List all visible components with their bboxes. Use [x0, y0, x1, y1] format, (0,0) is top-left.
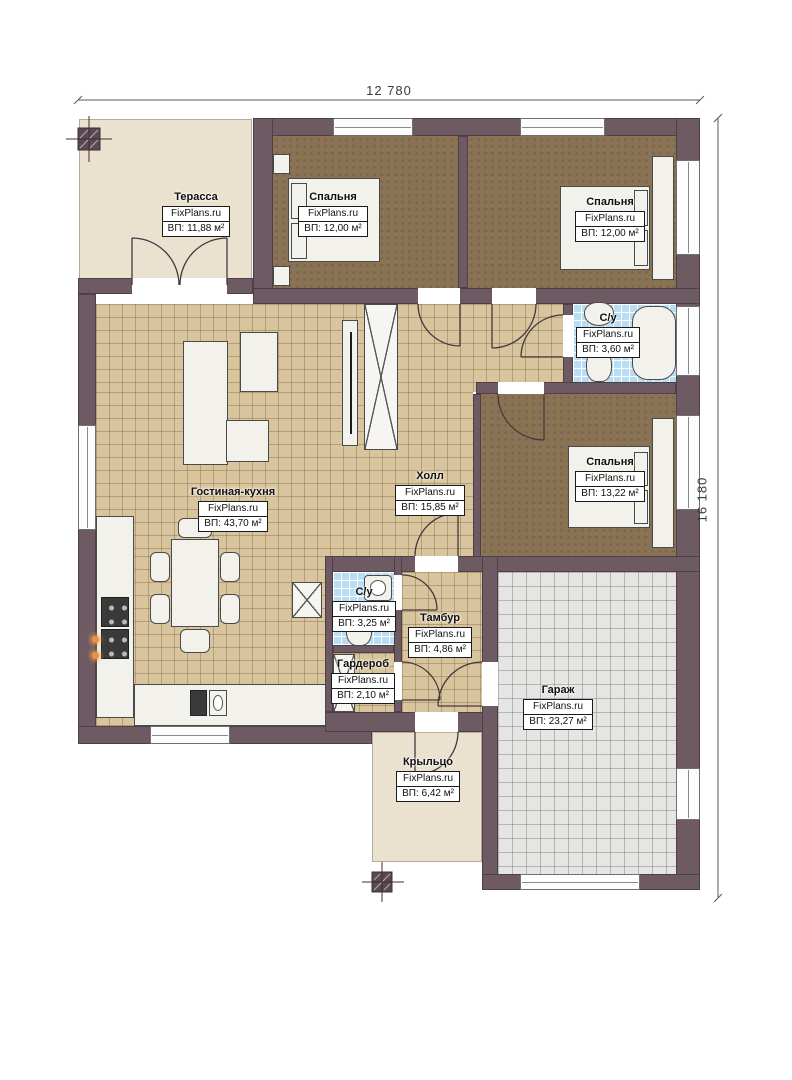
wall: [253, 118, 273, 302]
bedroom3-door-gap: [498, 382, 544, 394]
room-area: ВП: 13,22 м²: [576, 486, 643, 501]
floor-plan: 12 780 16 180 Терасса FixPlans.ruВП: 11,…: [0, 0, 792, 1080]
room-area: ВП: 12,00 м²: [576, 226, 643, 241]
dining-table: [171, 539, 219, 627]
garage-door: [520, 874, 640, 890]
room-area: ВП: 23,27 м²: [524, 714, 591, 729]
room-name: Спальня: [564, 456, 656, 469]
dimension-height-label: 16 180: [695, 450, 710, 550]
wall: [458, 136, 468, 288]
fridge-cabinet: [292, 582, 322, 618]
oven: [190, 690, 207, 716]
right-dimension-ticks: [714, 114, 722, 902]
window: [150, 726, 230, 744]
garage-side-door-gap: [482, 662, 498, 706]
brand-watermark: FixPlans.ru: [163, 207, 230, 221]
room-area: ВП: 2,10 м²: [332, 688, 394, 703]
kitchen-sink: [209, 690, 227, 716]
room-name: Холл: [388, 470, 472, 483]
hall-closet: [364, 304, 398, 450]
dimension-width-label: 12 780: [339, 83, 439, 98]
room-name: Спальня: [564, 196, 656, 209]
room-area: ВП: 6,42 м²: [397, 786, 459, 801]
hall-floor: [96, 304, 563, 392]
room-label-bedroom3: Спальня FixPlans.ruВП: 13,22 м²: [564, 456, 656, 502]
entrance-door-gap: [415, 712, 458, 732]
chair: [150, 594, 170, 624]
window: [676, 160, 700, 255]
brand-watermark: FixPlans.ru: [396, 486, 463, 500]
coffee-table: [240, 332, 278, 392]
brand-watermark: FixPlans.ru: [299, 207, 366, 221]
wall: [325, 556, 700, 572]
room-label-wardrobe: Гардероб FixPlans.ruВП: 2,10 м²: [326, 658, 400, 704]
room-label-bathroom1: С/у FixPlans.ruВП: 3,60 м²: [572, 312, 644, 358]
nightstand: [273, 266, 290, 286]
stove-burners: [101, 597, 129, 627]
vent-marker: [92, 636, 99, 643]
tv-screen: [350, 332, 352, 434]
room-label-porch: Крыльцо FixPlans.ruВП: 6,42 м²: [386, 756, 470, 802]
bedroom2-door-gap: [492, 288, 536, 304]
wall: [253, 118, 700, 136]
room-area: ВП: 3,25 м²: [333, 616, 395, 631]
room-area: ВП: 3,60 м²: [577, 342, 639, 357]
room-name: Крыльцо: [386, 756, 470, 769]
wall: [333, 645, 394, 653]
room-label-bedroom1: Спальня FixPlans.ruВП: 12,00 м²: [289, 191, 377, 237]
brand-watermark: FixPlans.ru: [576, 212, 643, 226]
room-label-tambour: Тамбур FixPlans.ruВП: 4,86 м²: [398, 612, 482, 658]
nightstand: [273, 154, 290, 174]
window: [676, 768, 700, 820]
tambour-hall-door-gap: [415, 556, 458, 572]
chair: [220, 594, 240, 624]
brand-watermark: FixPlans.ru: [199, 502, 266, 516]
room-name: С/у: [330, 586, 398, 599]
brand-watermark: FixPlans.ru: [576, 472, 643, 486]
brand-watermark: FixPlans.ru: [409, 628, 471, 642]
wall: [482, 556, 498, 890]
bedroom1-door-gap: [418, 288, 460, 304]
room-name: Спальня: [289, 191, 377, 204]
room-name: Тамбур: [398, 612, 482, 625]
room-area: ВП: 4,86 м²: [409, 642, 471, 657]
room-area: ВП: 11,88 м²: [163, 221, 230, 236]
sofa: [183, 341, 228, 465]
brand-watermark: FixPlans.ru: [333, 602, 395, 616]
window: [676, 306, 700, 376]
wall: [253, 288, 700, 304]
window: [520, 118, 605, 136]
room-area: ВП: 43,70 м²: [199, 516, 266, 531]
room-area: ВП: 15,85 м²: [396, 500, 463, 515]
wall: [325, 712, 498, 732]
brand-watermark: FixPlans.ru: [397, 772, 459, 786]
window: [333, 118, 413, 136]
stove-burners: [101, 629, 129, 659]
chair: [180, 629, 210, 653]
room-label-terrace: Терасса FixPlans.ruВП: 11,88 м²: [138, 191, 254, 237]
chair: [220, 552, 240, 582]
window: [78, 425, 96, 530]
terrace-door-gap: [132, 278, 227, 294]
sofa-chaise: [226, 420, 269, 462]
room-label-bathroom2: С/у FixPlans.ruВП: 3,25 м²: [330, 586, 398, 632]
room-label-hall: Холл FixPlans.ruВП: 15,85 м²: [388, 470, 472, 516]
room-label-bedroom2: Спальня FixPlans.ruВП: 12,00 м²: [564, 196, 656, 242]
room-label-garage: Гараж FixPlans.ruВП: 23,27 м²: [516, 684, 600, 730]
room-name: Гараж: [516, 684, 600, 697]
room-name: Гардероб: [326, 658, 400, 671]
kitchen-counter: [134, 684, 326, 726]
brand-watermark: FixPlans.ru: [577, 328, 639, 342]
wall: [473, 394, 481, 558]
room-name: Терасса: [138, 191, 254, 204]
room-label-living-kitchen: Гостиная-кухня FixPlans.ruВП: 43,70 м²: [164, 486, 302, 532]
brand-watermark: FixPlans.ru: [524, 700, 591, 714]
room-area: ВП: 12,00 м²: [299, 221, 366, 236]
chair: [150, 552, 170, 582]
room-name: Гостиная-кухня: [164, 486, 302, 499]
vent-marker: [92, 652, 99, 659]
tv-panel: [342, 320, 358, 446]
brand-watermark: FixPlans.ru: [332, 674, 394, 688]
sink-basin: [213, 695, 223, 710]
corner-marker: [372, 872, 392, 892]
room-name: С/у: [572, 312, 644, 325]
